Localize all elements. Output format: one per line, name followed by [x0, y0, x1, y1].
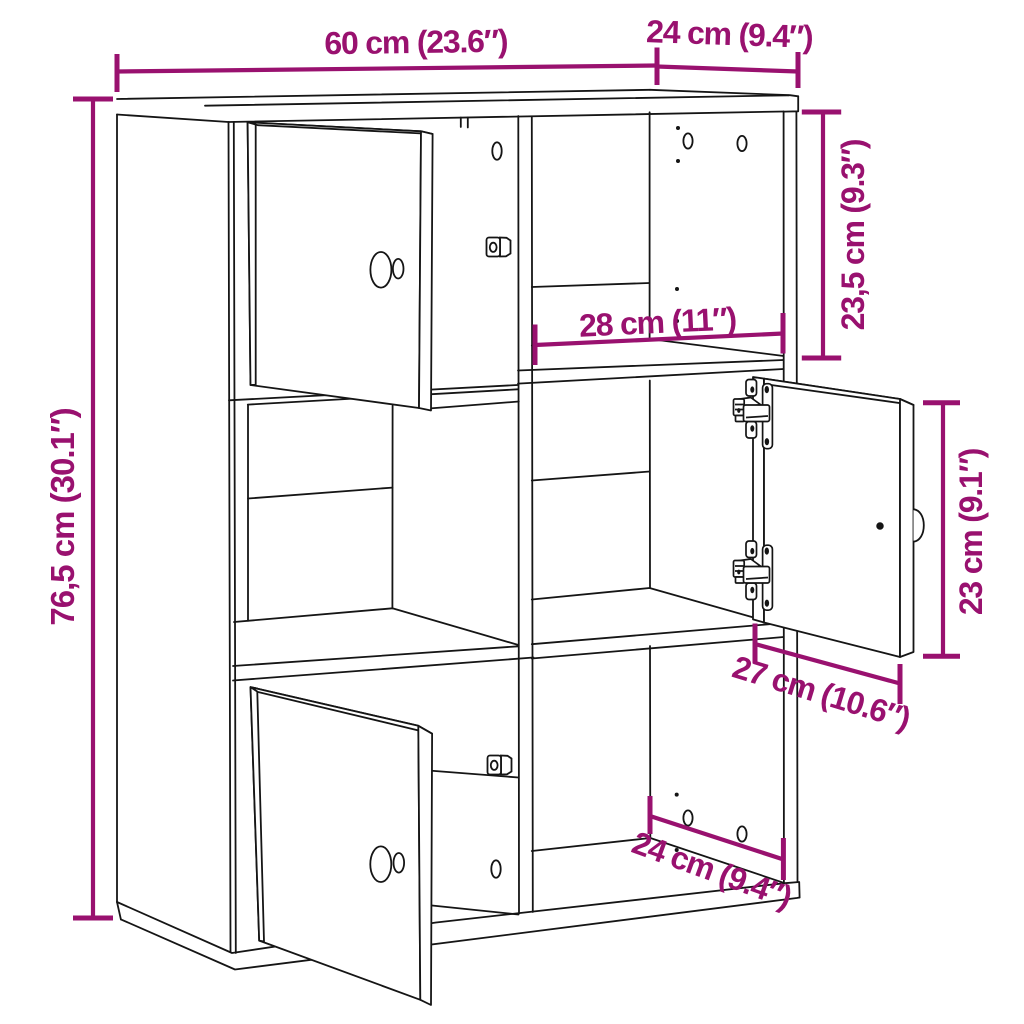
svg-text:24 cm (9.4″): 24 cm (9.4″): [646, 13, 814, 55]
svg-text:76,5 cm (30.1″): 76,5 cm (30.1″): [44, 408, 81, 625]
svg-text:23 cm (9.1″): 23 cm (9.1″): [953, 448, 989, 615]
svg-text:23,5 cm (9.3″): 23,5 cm (9.3″): [835, 139, 871, 330]
svg-text:60 cm (23.6″): 60 cm (23.6″): [324, 23, 508, 62]
svg-text:28 cm (11″): 28 cm (11″): [578, 300, 737, 343]
